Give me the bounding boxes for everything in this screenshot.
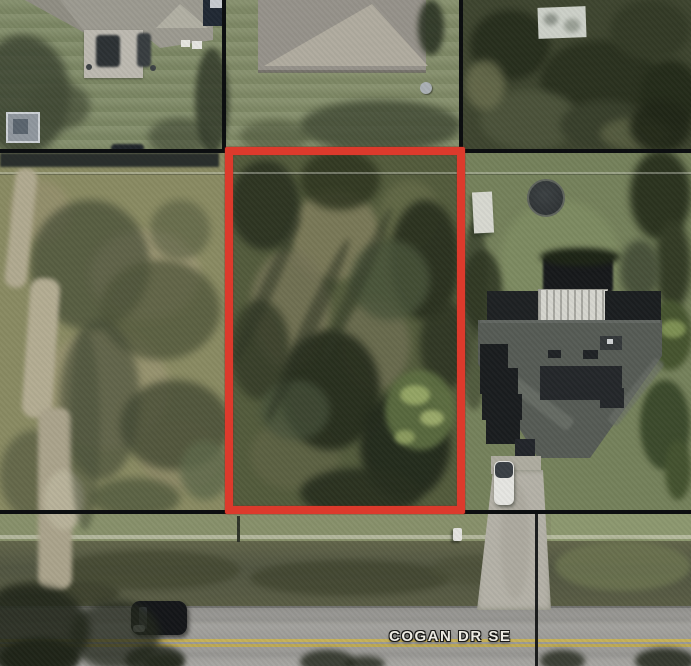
- solar-panels-west: [480, 344, 508, 368]
- shed-white: [472, 192, 494, 234]
- trampoline: [527, 179, 565, 217]
- shed-northwest: [6, 112, 40, 143]
- satellite-dish: [420, 82, 432, 94]
- aerial-map: COGAN DR SE: [0, 0, 691, 666]
- subject-parcel-outline: [225, 147, 465, 514]
- van-in-driveway: [494, 461, 514, 505]
- mailbox: [453, 528, 462, 541]
- street-label: COGAN DR SE: [389, 628, 511, 645]
- parcel-line-vertical-ne: [459, 0, 463, 151]
- path-edge-line: [0, 535, 691, 539]
- rv-white-roof: [538, 289, 608, 321]
- parcel-line-vertical-road: [535, 514, 538, 666]
- parcel-line-vertical-nw: [222, 0, 226, 151]
- fence-post: [237, 516, 240, 542]
- shed-northeast: [537, 6, 586, 39]
